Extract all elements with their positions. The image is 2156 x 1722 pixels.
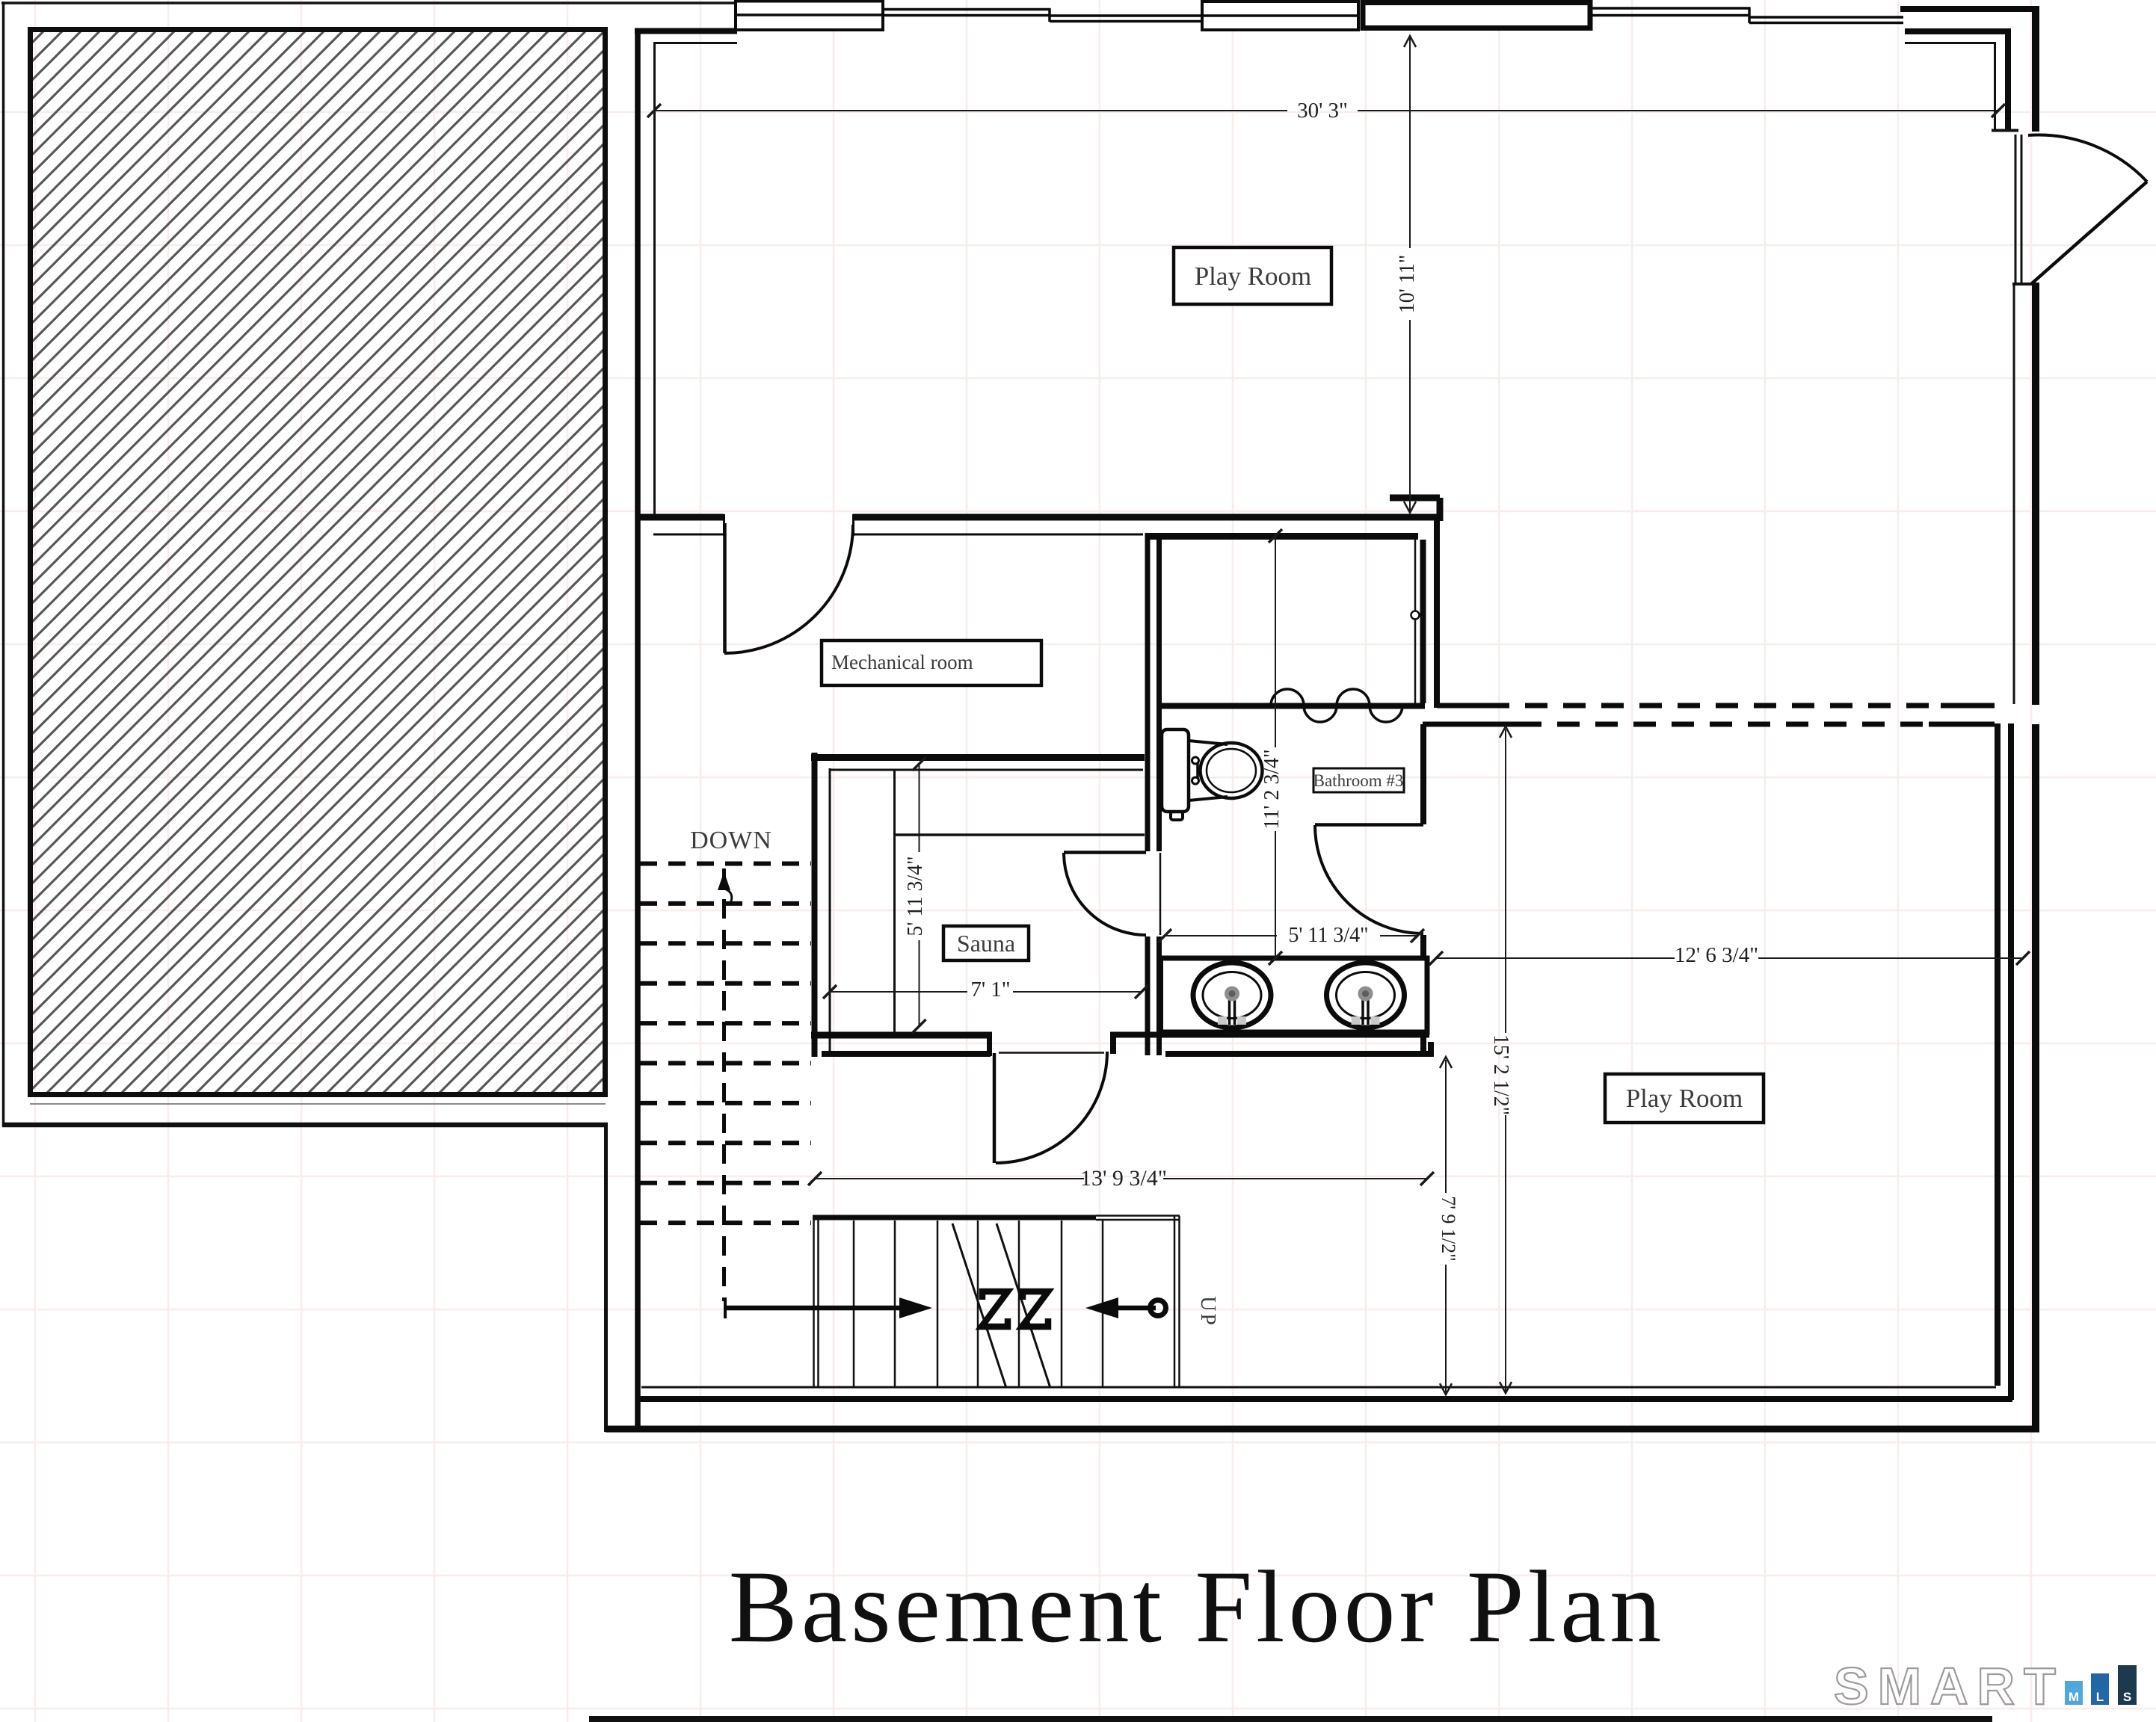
svg-text:L: L	[2096, 1690, 2104, 1704]
svg-text:30' 3": 30' 3"	[1297, 99, 1348, 123]
svg-text:13' 9 3/4": 13' 9 3/4"	[1080, 1166, 1167, 1191]
svg-text:M: M	[2069, 1690, 2079, 1704]
svg-text:7' 1": 7' 1"	[970, 978, 1010, 1002]
svg-text:11' 2 3/4": 11' 2 3/4"	[1260, 749, 1284, 829]
svg-text:Mechanical room: Mechanical room	[831, 651, 973, 673]
svg-text:Basement Floor Plan: Basement Floor Plan	[729, 1549, 1666, 1664]
svg-text:12' 6 3/4": 12' 6 3/4"	[1675, 943, 1758, 967]
svg-text:S: S	[2123, 1690, 2131, 1704]
svg-text:Play Room: Play Room	[1626, 1084, 1743, 1113]
svg-text:UP: UP	[1196, 1296, 1219, 1327]
svg-text:DOWN: DOWN	[690, 827, 772, 854]
svg-text:SMART: SMART	[1834, 1657, 2065, 1715]
svg-text:5' 11 3/4": 5' 11 3/4"	[1288, 924, 1368, 947]
svg-text:Play Room: Play Room	[1195, 262, 1312, 291]
svg-text:15' 2 1/2": 15' 2 1/2"	[1489, 1034, 1512, 1115]
svg-text:Bathroom #3: Bathroom #3	[1313, 771, 1404, 790]
svg-text:5' 11 3/4": 5' 11 3/4"	[904, 856, 927, 936]
svg-text:7' 9 1/2": 7' 9 1/2"	[1438, 1196, 1459, 1262]
svg-text:Sauna: Sauna	[957, 930, 1015, 957]
svg-text:10' 11": 10' 11"	[1396, 255, 1419, 313]
